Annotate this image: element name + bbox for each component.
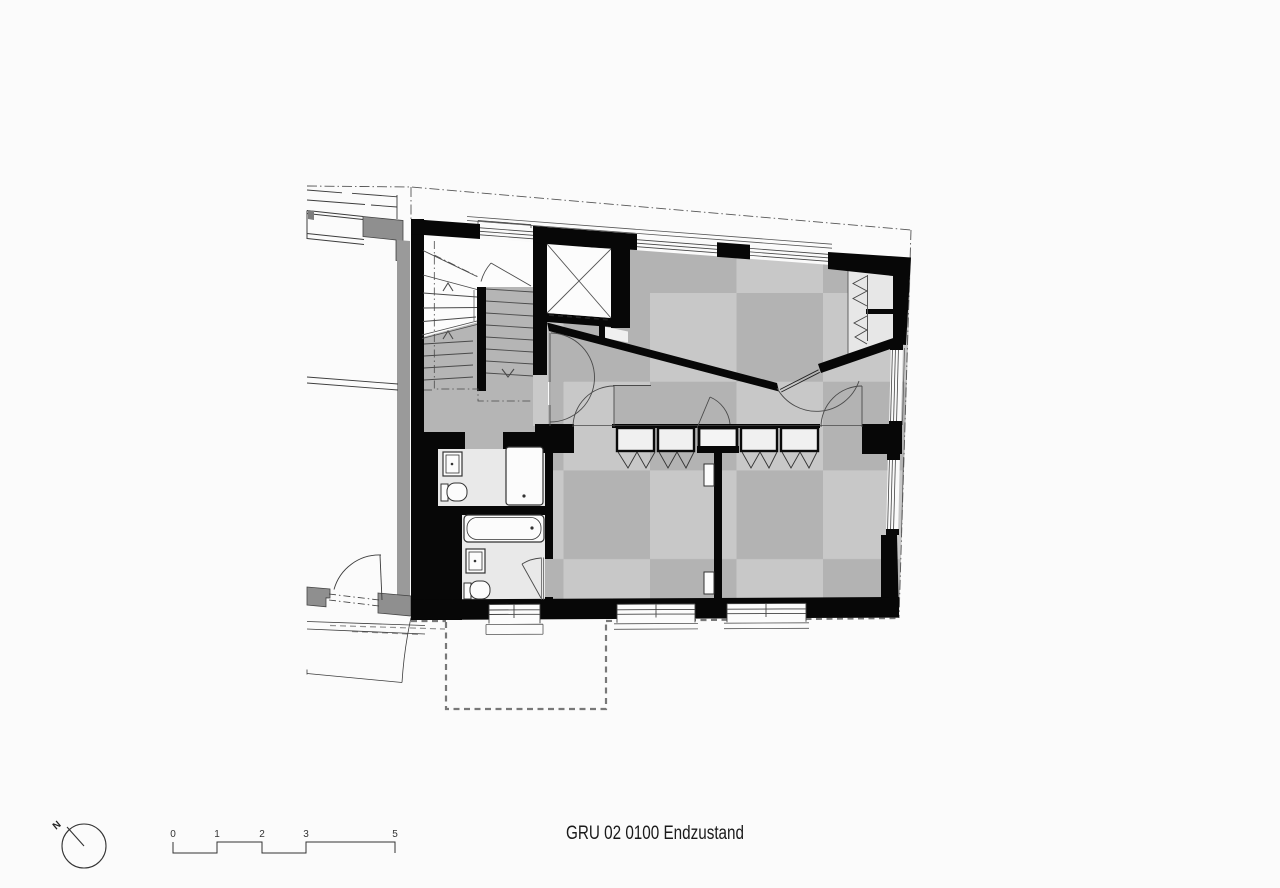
svg-text:0: 0	[170, 829, 176, 840]
svg-text:5: 5	[392, 829, 398, 840]
svg-text:3: 3	[303, 829, 309, 840]
svg-text:1: 1	[214, 829, 220, 840]
svg-text:GRU 02 0100 Endzustand: GRU 02 0100 Endzustand	[566, 823, 744, 844]
svg-text:2: 2	[259, 829, 265, 840]
